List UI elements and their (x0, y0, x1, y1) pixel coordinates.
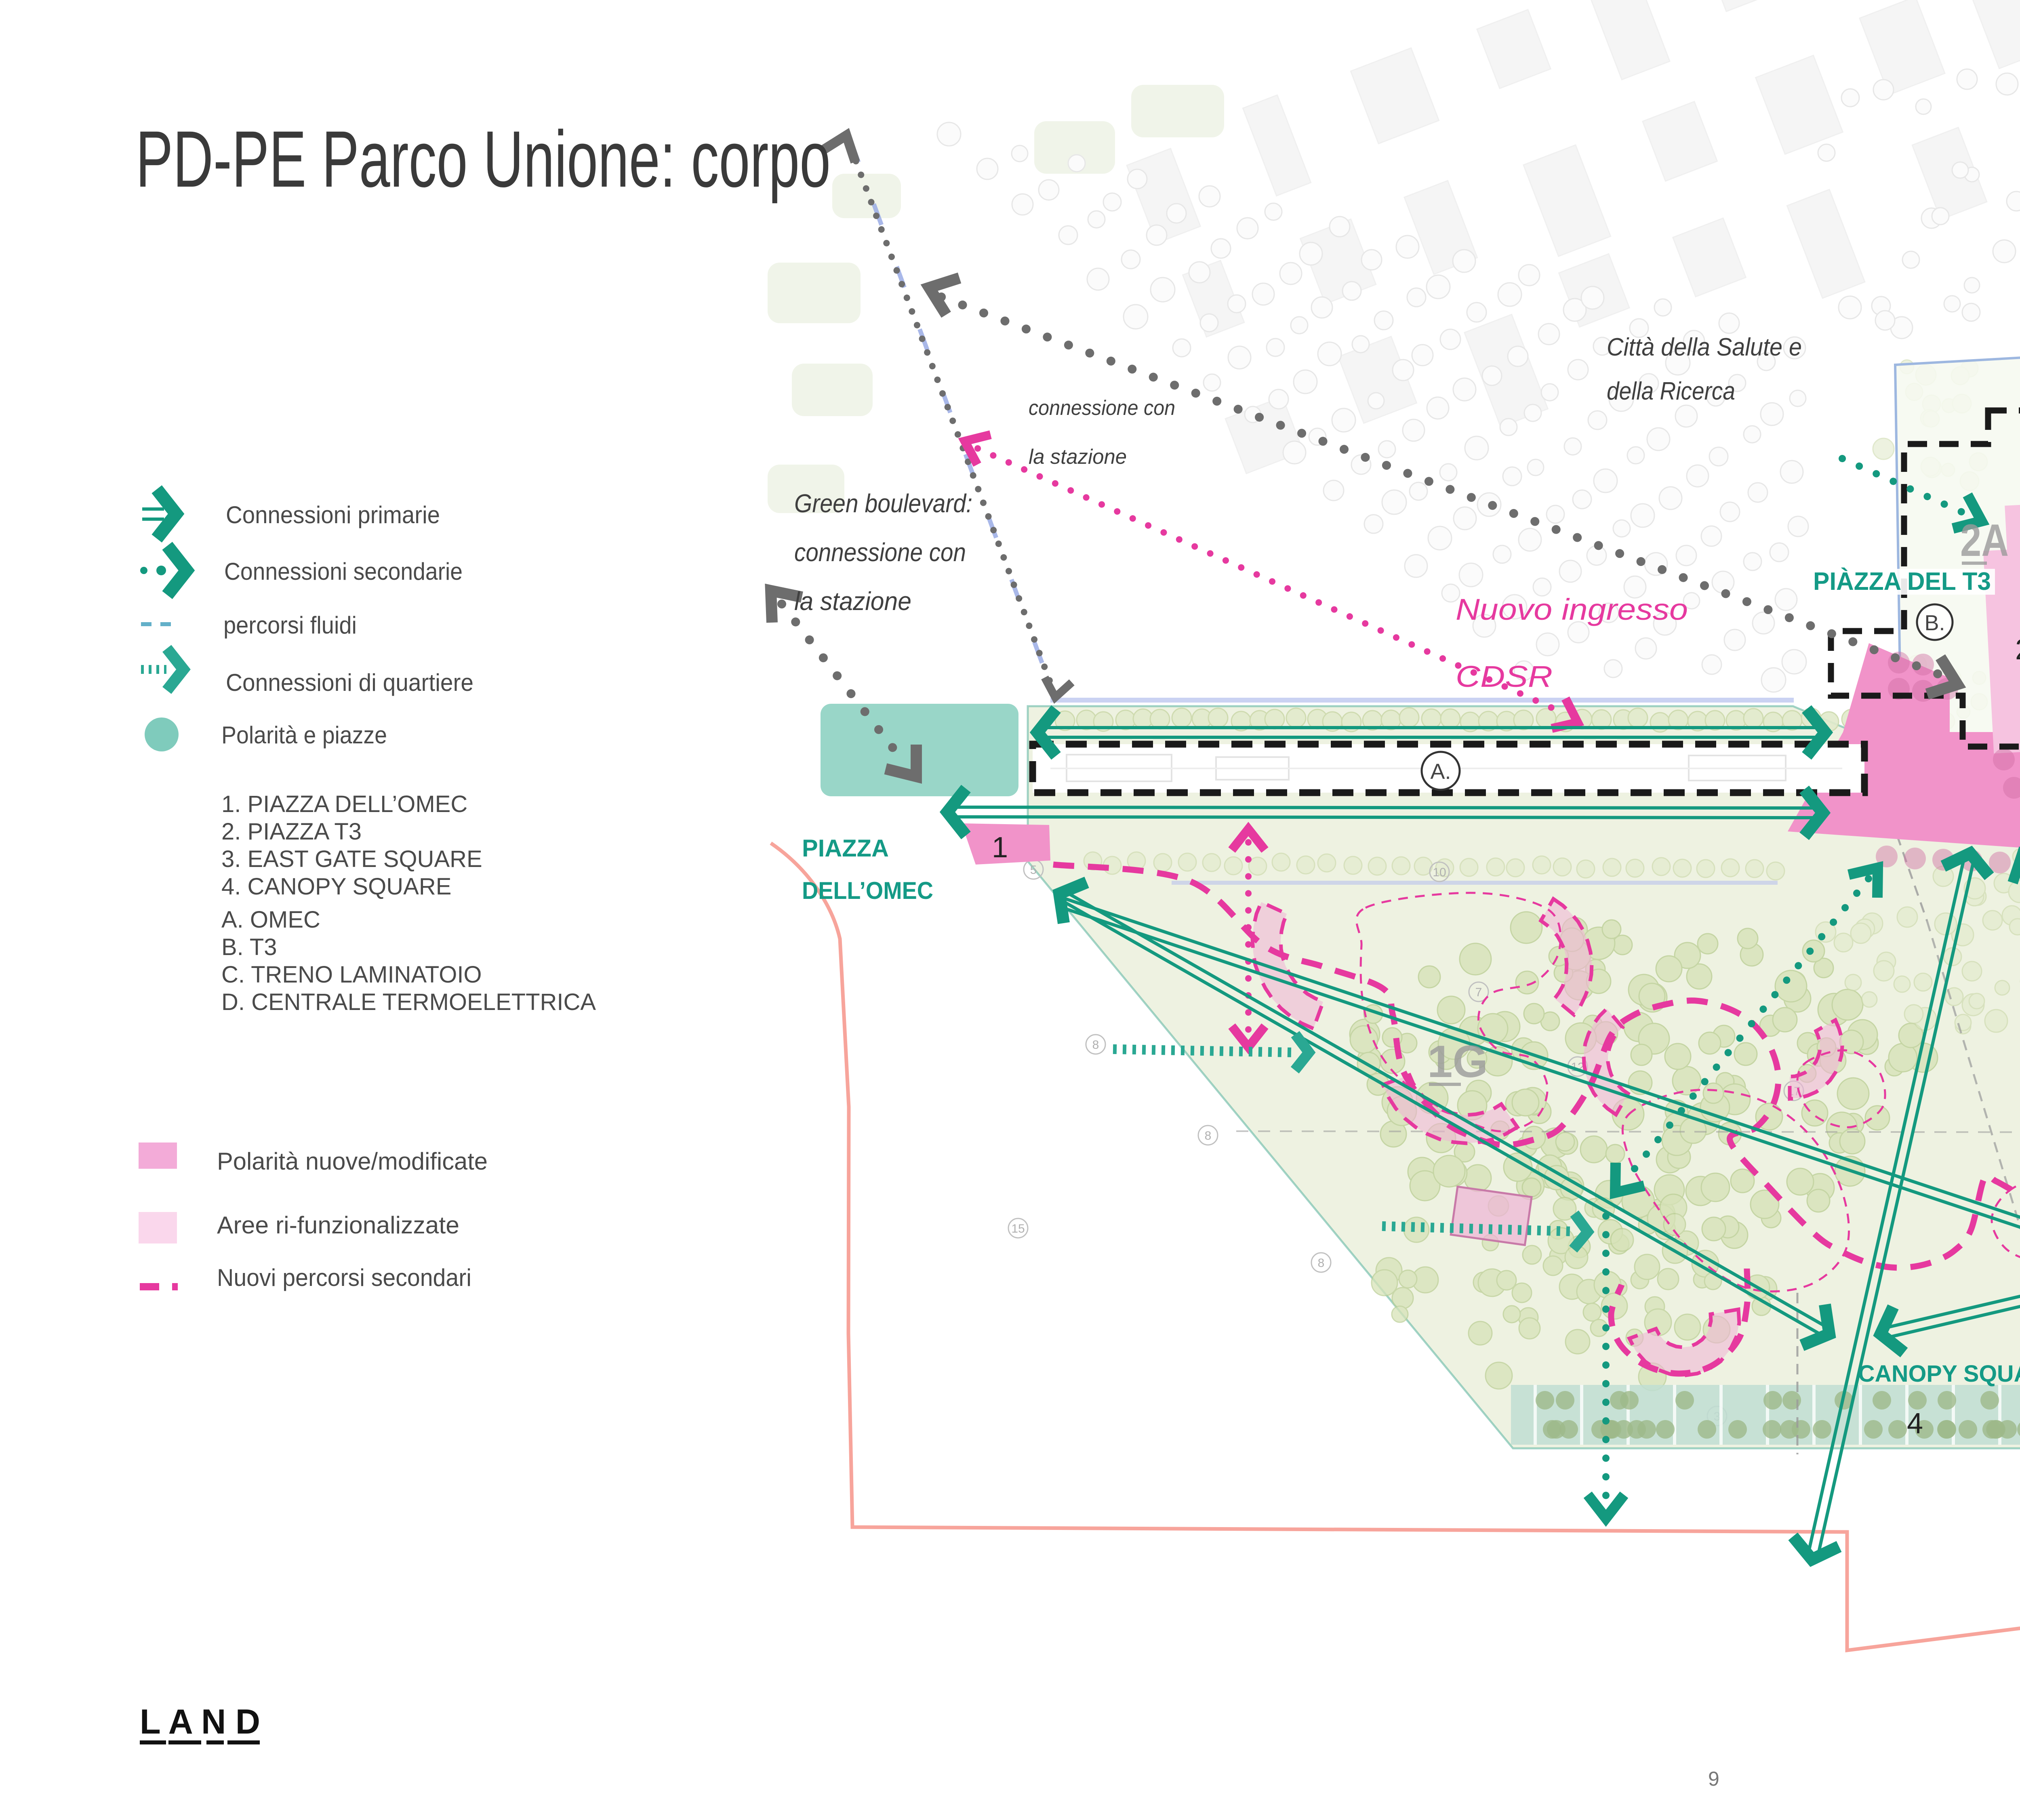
svg-text:percorsi fluidi: percorsi fluidi (223, 612, 357, 639)
svg-text:PIÀZZA DEL T3: PIÀZZA DEL T3 (1813, 568, 1991, 595)
svg-text:della Ricerca: della Ricerca (1607, 377, 1735, 405)
svg-text:4: 4 (1907, 1408, 1923, 1440)
svg-text:A. OMEC: A. OMEC (221, 907, 320, 933)
svg-text:8: 8 (1318, 1256, 1325, 1270)
svg-text:la stazione: la stazione (794, 587, 911, 616)
svg-text:DELL’OMEC: DELL’OMEC (802, 877, 933, 904)
svg-text:15: 15 (1011, 1222, 1025, 1235)
svg-text:connessione con: connessione con (794, 538, 966, 567)
svg-text:8: 8 (1205, 1129, 1212, 1142)
svg-text:8: 8 (1092, 1038, 1099, 1052)
svg-text:5: 5 (1030, 863, 1037, 877)
svg-text:9: 9 (1708, 1767, 1719, 1790)
svg-text:3. EAST GATE SQUARE: 3. EAST GATE SQUARE (221, 846, 482, 872)
svg-text:B.: B. (1924, 611, 1945, 635)
svg-text:PD-PE Parco Unione: corpo: PD-PE Parco Unione: corpo (136, 114, 831, 204)
svg-text:Nuovi percorsi secondari: Nuovi percorsi secondari (217, 1264, 471, 1291)
svg-text:B. T3: B. T3 (221, 934, 277, 960)
svg-text:1. PIAZZA DELL’OMEC: 1. PIAZZA DELL’OMEC (221, 791, 467, 817)
svg-text:4. CANOPY SQUARE: 4. CANOPY SQUARE (221, 873, 451, 900)
svg-text:Nuovo ingresso: Nuovo ingresso (1456, 593, 1688, 626)
svg-text:Città della Salute e: Città della Salute e (1607, 333, 1802, 361)
svg-text:2: 2 (2015, 633, 2020, 666)
svg-text:A.: A. (1430, 760, 1451, 784)
svg-text:Connessioni primarie: Connessioni primarie (226, 501, 440, 528)
svg-text:10: 10 (1433, 866, 1446, 879)
svg-text:L A N D: L A N D (140, 1702, 260, 1741)
svg-text:7: 7 (1475, 986, 1482, 999)
svg-text:1: 1 (992, 831, 1008, 864)
svg-text:Polarità e piazze: Polarità e piazze (221, 722, 387, 749)
svg-text:D. CENTRALE TERMOELETTRICA: D. CENTRALE TERMOELETTRICA (221, 989, 596, 1015)
svg-text:CDSR: CDSR (1456, 660, 1553, 693)
svg-text:C. TRENO LAMINATOIO: C. TRENO LAMINATOIO (221, 962, 482, 988)
svg-text:Green boulevard:: Green boulevard: (794, 489, 972, 518)
svg-text:Connessioni di quartiere: Connessioni di quartiere (226, 669, 473, 696)
svg-text:2A: 2A (1960, 515, 2009, 566)
svg-text:la stazione: la stazione (1029, 445, 1127, 469)
svg-text:CANOPY SQUARE: CANOPY SQUARE (1858, 1361, 2020, 1387)
svg-text:2. PIAZZA T3: 2. PIAZZA T3 (221, 818, 362, 845)
svg-text:connessione con: connessione con (1029, 396, 1175, 420)
svg-text:Aree ri-funzionalizzate: Aree ri-funzionalizzate (217, 1212, 459, 1239)
svg-text:Connessioni secondarie: Connessioni secondarie (224, 558, 463, 585)
svg-text:Polarità nuove/modificate: Polarità nuove/modificate (217, 1148, 488, 1175)
svg-text:PIAZZA: PIAZZA (802, 835, 889, 862)
svg-text:1G: 1G (1427, 1036, 1488, 1087)
